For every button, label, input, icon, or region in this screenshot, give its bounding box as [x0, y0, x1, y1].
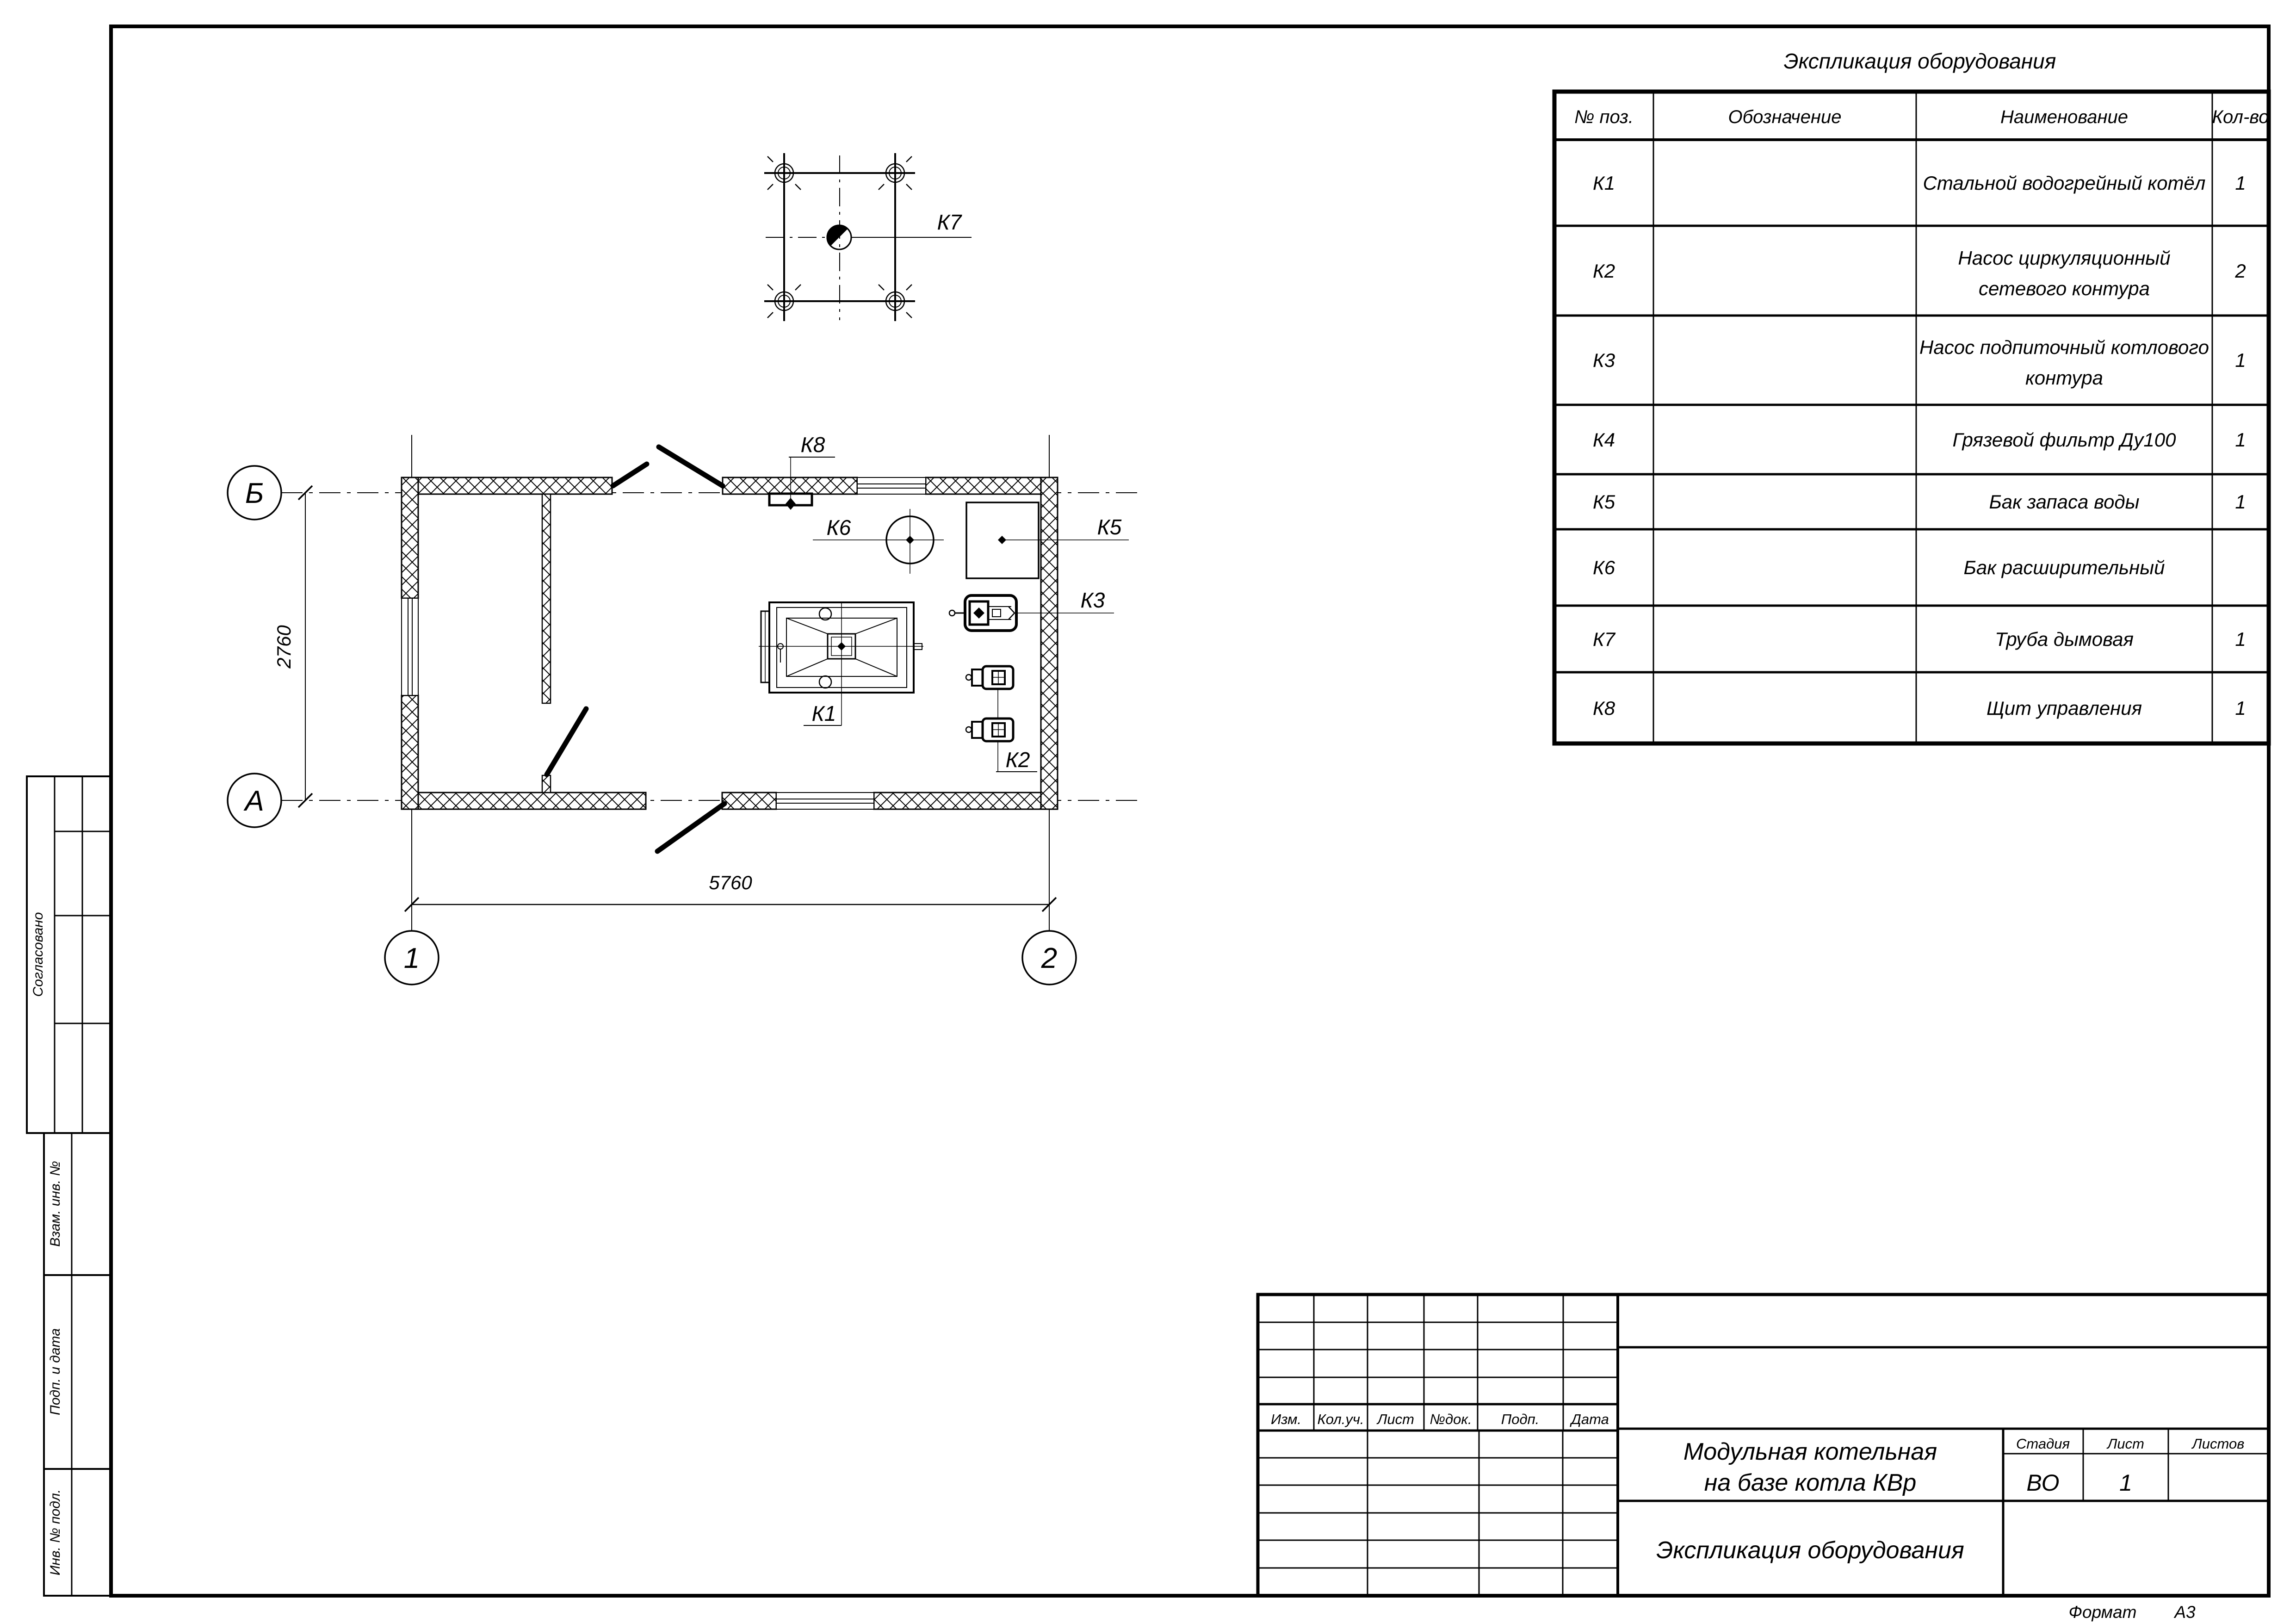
table-row: К8 Щит управления 1 [1593, 697, 2246, 719]
row-name: контура [2025, 367, 2103, 389]
table-row: К1 Стальной водогрейный котёл 1 [1593, 172, 2246, 194]
table-row: К2 Насос циркуляционный сетевого контура… [1593, 247, 2246, 299]
axis-bubbles: Б А 1 2 [228, 466, 1076, 985]
col-header-pos: № поз. [1574, 107, 1634, 127]
row-name: Стальной водогрейный котёл [1923, 172, 2206, 194]
format-value: А3 [2173, 1603, 2196, 1622]
tb-podp: Подп. [1501, 1411, 1540, 1427]
row-name: Бак расширительный [1964, 557, 2165, 578]
tb-list: Лист [1376, 1411, 1414, 1427]
side-label-approved: Согласовано [31, 912, 46, 997]
pump-k3: К3 [949, 588, 1114, 631]
partition-wall [542, 494, 551, 703]
pump-symbol [966, 666, 1013, 689]
row-qty: 1 [2235, 697, 2246, 719]
axis-mark-2: 2 [1041, 942, 1057, 974]
tag-k3: К3 [1081, 588, 1105, 612]
axis-mark-b: Б [245, 477, 264, 509]
row-name: сетевого контура [1979, 278, 2150, 299]
row-pos: К4 [1593, 429, 1615, 451]
project-name-line1: Модульная котельная [1683, 1438, 1937, 1465]
dimension-vertical: 2760 [273, 486, 312, 807]
row-pos: К2 [1593, 260, 1615, 282]
drawing-sheet: Согласовано Взам. инв. № Подп. и дата Ин… [0, 0, 2296, 1623]
pumps-k2: К2 [966, 666, 1037, 772]
tb-data: Дата [1570, 1411, 1609, 1427]
drawing-canvas: Согласовано Взам. инв. № Подп. и дата Ин… [0, 0, 2296, 1623]
table-row: К7 Труба дымовая 1 [1593, 628, 2246, 650]
table-row: К5 Бак запаса воды 1 [1593, 491, 2246, 513]
axis-mark-a: А [243, 785, 264, 817]
sheet-label: Лист [2106, 1436, 2144, 1452]
row-name: Насос циркуляционный [1958, 247, 2170, 269]
project-name-line2: на базе котла КВр [1704, 1469, 1917, 1496]
row-qty: 2 [2234, 260, 2246, 282]
col-header-qty: Кол-во [2212, 107, 2269, 127]
tag-k7: К7 [937, 210, 962, 234]
doc-name: Экспликация оборудования [1656, 1537, 1964, 1564]
pump-symbol [966, 719, 1013, 741]
side-label-replace-inv: Взам. инв. № [48, 1161, 63, 1247]
chimney-detail-k7: К7 [764, 153, 972, 321]
side-label-sign-date: Подп. и дата [48, 1328, 63, 1415]
row-qty: 1 [2235, 491, 2246, 513]
tag-k1: К1 [812, 701, 836, 725]
stage-label: Стадия [2016, 1436, 2070, 1452]
tag-k6: К6 [827, 515, 851, 539]
col-header-designation: Обозначение [1728, 107, 1841, 127]
row-pos: К5 [1593, 491, 1615, 513]
row-qty: 1 [2235, 349, 2246, 371]
boiler-k1: К1 [759, 602, 923, 725]
equipment-table-title: Экспликация оборудования [1784, 49, 2056, 73]
tb-ndok: №док. [1430, 1411, 1472, 1427]
control-panel-k8: К8 [769, 433, 835, 510]
walls [402, 477, 1058, 809]
row-name: Бак запаса воды [1989, 491, 2139, 513]
format-label: Формат [2069, 1603, 2137, 1622]
row-pos: К3 [1593, 349, 1615, 371]
row-name: Грязевой фильтр Ду100 [1953, 429, 2177, 451]
dim-vertical-value: 2760 [273, 625, 295, 669]
row-pos: К8 [1593, 697, 1615, 719]
sheet-value: 1 [2119, 1470, 2132, 1496]
table-row: К3 Насос подпиточный котлового контура 1 [1593, 336, 2246, 389]
tb-izm: Изм. [1271, 1411, 1301, 1427]
table-row: К6 Бак расширительный [1593, 557, 2165, 578]
row-qty: 1 [2235, 429, 2246, 451]
row-name: Насос подпиточный котлового [1919, 336, 2209, 358]
side-label-inv-number: Инв. № подл. [48, 1489, 63, 1575]
row-pos: К7 [1593, 628, 1616, 650]
stage-value: ВО [2026, 1470, 2059, 1496]
axis-mark-1: 1 [404, 942, 420, 974]
col-header-name: Наименование [2000, 107, 2128, 127]
expansion-tank-k6: К6 [813, 509, 944, 574]
sheet-frame [111, 26, 2269, 1596]
door-leaves [547, 447, 724, 851]
dim-horizontal-value: 5760 [709, 872, 752, 893]
sheets-label: Листов [2191, 1436, 2245, 1452]
tb-koluch: Кол.уч. [1317, 1411, 1364, 1427]
title-block: Изм. Кол.уч. Лист №док. Подп. Дата Модул… [1258, 1295, 2269, 1622]
row-pos: К1 [1593, 172, 1615, 194]
row-qty: 1 [2235, 172, 2246, 194]
row-name: Труба дымовая [1995, 628, 2134, 650]
row-qty: 1 [2235, 628, 2246, 650]
dimension-horizontal: 5760 [405, 872, 1056, 911]
table-row: К4 Грязевой фильтр Ду100 1 [1593, 429, 2246, 451]
side-stamp: Согласовано Взам. инв. № Подп. и дата Ин… [27, 776, 111, 1596]
door-stub [542, 775, 551, 793]
row-name: Щит управления [1987, 697, 2142, 719]
tag-k5: К5 [1097, 515, 1122, 539]
tag-k8: К8 [801, 433, 825, 457]
floor-plan: 2760 5760 Б А 1 2 [228, 153, 1143, 985]
row-pos: К6 [1593, 557, 1615, 578]
equipment-table: Экспликация оборудования № поз. Обозначе… [1554, 49, 2269, 743]
tag-k2: К2 [1006, 748, 1030, 772]
